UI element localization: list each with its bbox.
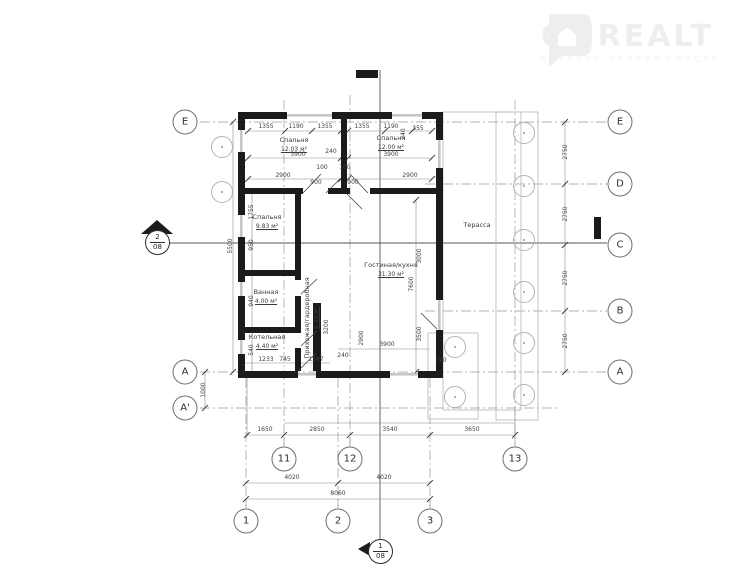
- column-circle: [513, 332, 535, 354]
- dimension-label: 240: [325, 149, 336, 155]
- column-circle: [513, 384, 535, 406]
- dimension-label: 100: [339, 165, 350, 171]
- column-circle: [513, 281, 535, 303]
- section-line-top-mark: [356, 70, 378, 78]
- dimension-label: 2900: [359, 330, 365, 345]
- dimension-label: 1190: [288, 124, 303, 130]
- room-area: 9.83 м²: [253, 223, 282, 230]
- dimension-label: 1233: [258, 357, 273, 363]
- room-name: Спальня: [253, 214, 282, 222]
- column-circle: [513, 229, 535, 251]
- onrealt-logo-icon: [541, 8, 593, 68]
- dimension-label: 5500: [228, 238, 234, 253]
- room-area: 12.00 м²: [377, 144, 406, 151]
- dimension-label: 3900: [290, 152, 305, 158]
- axis-bubble-E: E: [608, 110, 633, 135]
- dimension-label: 2900: [402, 173, 417, 179]
- section-marker-circle: 2 08: [145, 230, 170, 255]
- axis-bubble-3: 3: [418, 509, 443, 534]
- floor-plan-drawing: [0, 0, 739, 574]
- dimension-label: 355: [412, 126, 423, 132]
- room-area: 4.00 м²: [254, 298, 279, 305]
- dimension-label: 100: [316, 165, 327, 171]
- room-name: Гостиная/кухня: [364, 262, 418, 270]
- dimension-label: 2750: [563, 206, 569, 221]
- axis-bubble-E: E: [173, 110, 198, 135]
- room-name: Спальня: [280, 137, 309, 145]
- dimension-label: 4020: [284, 475, 299, 481]
- right-side-mark: [594, 217, 601, 239]
- terrace-and-column-strips: [428, 112, 538, 420]
- dimension-label: 3540: [382, 427, 397, 433]
- dimension-ticks: [202, 119, 568, 502]
- floor-plan-page: ONREALT КАТАЛОГ НЕДВИЖИМОСТИ Спальня12.0…: [0, 0, 739, 574]
- dimension-label: 1355: [317, 124, 332, 130]
- section-sheet: 08: [376, 552, 385, 560]
- room-name: Ванная: [254, 289, 279, 297]
- room-area: 5.35 м²: [313, 277, 320, 358]
- axis-bubble-12: 12: [338, 447, 363, 472]
- dimension-label: 3900: [383, 152, 398, 158]
- dimension-label: 240: [337, 353, 348, 359]
- dimension-label: 1650: [257, 427, 272, 433]
- dimension-label: 4020: [376, 475, 391, 481]
- dimension-label: 7600: [409, 276, 415, 291]
- dimension-label: 1755: [249, 204, 255, 219]
- axis-bubble-A: A: [608, 360, 633, 385]
- section-number: 2: [150, 234, 164, 243]
- dimension-label: 2850: [309, 427, 324, 433]
- dimension-label: 900: [347, 180, 358, 186]
- dimension-label: 3500: [417, 326, 423, 341]
- section-marker-1-08: 1 08: [368, 539, 393, 564]
- axis-bubble-11: 11: [272, 447, 297, 472]
- dimension-label: 2750: [563, 270, 569, 285]
- dimension-label: 2750: [563, 333, 569, 348]
- axis-bubble-A': A': [173, 396, 198, 421]
- dimension-label: 3650: [464, 427, 479, 433]
- dimension-label: 2750: [563, 144, 569, 159]
- dimension-label: 2900: [275, 173, 290, 179]
- dimension-label: 790: [435, 358, 446, 364]
- section-number: 1: [373, 543, 387, 552]
- section-marker-2-08: 2 08: [145, 230, 170, 255]
- dimension-label: 1355: [258, 124, 273, 130]
- axis-bubble-D: D: [608, 172, 633, 197]
- dimension-label: 3900: [379, 342, 394, 348]
- axis-bubble-B: B: [608, 299, 633, 324]
- dimension-label: 540: [249, 344, 255, 355]
- column-circle: [444, 386, 466, 408]
- column-circle: [513, 122, 535, 144]
- axis-bubble-A: A: [173, 360, 198, 385]
- column-circle: [211, 181, 233, 203]
- dimension-label: 745: [279, 357, 290, 363]
- dimension-label: 900: [310, 180, 321, 186]
- room-label-bathroom: Ванная4.00 м²: [254, 289, 279, 305]
- section-sheet: 08: [153, 243, 162, 251]
- dimension-label: 1355: [354, 124, 369, 130]
- dimension-label: 1000: [201, 382, 207, 397]
- dimension-label: 940: [249, 295, 255, 306]
- dimension-label: 1587: [308, 357, 323, 363]
- column-circle: [211, 136, 233, 158]
- column-circle: [513, 175, 535, 197]
- room-name: Котельная: [249, 334, 286, 342]
- dimension-label: 8060: [330, 491, 345, 497]
- room-label-terrace: Терасса: [463, 222, 490, 230]
- axis-bubble-2: 2: [326, 509, 351, 534]
- room-label-hall-wardrobe: Прихожая/гардеробная5.35 м²: [304, 277, 320, 358]
- room-name: Терасса: [463, 222, 490, 230]
- dimension-label: 3000: [417, 248, 423, 263]
- dimension-label: 3200: [324, 319, 330, 334]
- dimension-label: 1190: [383, 124, 398, 130]
- onrealt-watermark: ONREALT КАТАЛОГ НЕДВИЖИМОСТИ: [541, 8, 721, 63]
- column-circle: [444, 336, 466, 358]
- room-name: Прихожая/гардеробная: [304, 277, 312, 358]
- dimension-label: 950: [249, 239, 255, 250]
- axis-bubble-13: 13: [503, 447, 528, 472]
- room-label-bedroom-3: Спальня9.83 м²: [253, 214, 282, 230]
- axis-bubble-1: 1: [234, 509, 259, 534]
- dimension-label: 240: [401, 128, 407, 139]
- section-marker-circle: 1 08: [368, 539, 393, 564]
- axis-bubble-C: C: [608, 233, 633, 258]
